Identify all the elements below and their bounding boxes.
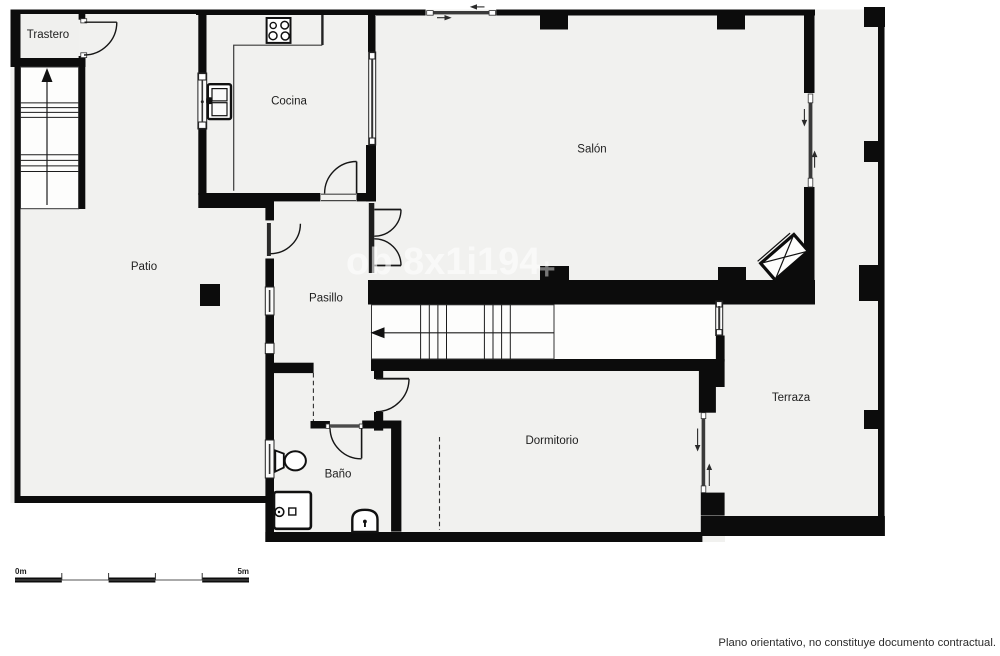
svg-text:Cocina: Cocina [271,96,307,108]
svg-text:5m: 5m [237,567,249,576]
svg-text:ob 8x1i194: ob 8x1i194 [346,241,540,283]
svg-text:Patio: Patio [131,261,157,273]
svg-text:Terraza: Terraza [772,392,811,404]
svg-text:Baño: Baño [325,469,352,481]
svg-text:Plano orientativo, no constitu: Plano orientativo, no constituye documen… [718,637,996,649]
svg-text:Salón: Salón [577,144,606,156]
svg-text:+: + [538,253,556,286]
svg-text:0m: 0m [15,567,27,576]
svg-text:Pasillo: Pasillo [309,293,343,305]
svg-text:Dormitorio: Dormitorio [525,435,578,447]
svg-text:Trastero: Trastero [27,29,69,41]
